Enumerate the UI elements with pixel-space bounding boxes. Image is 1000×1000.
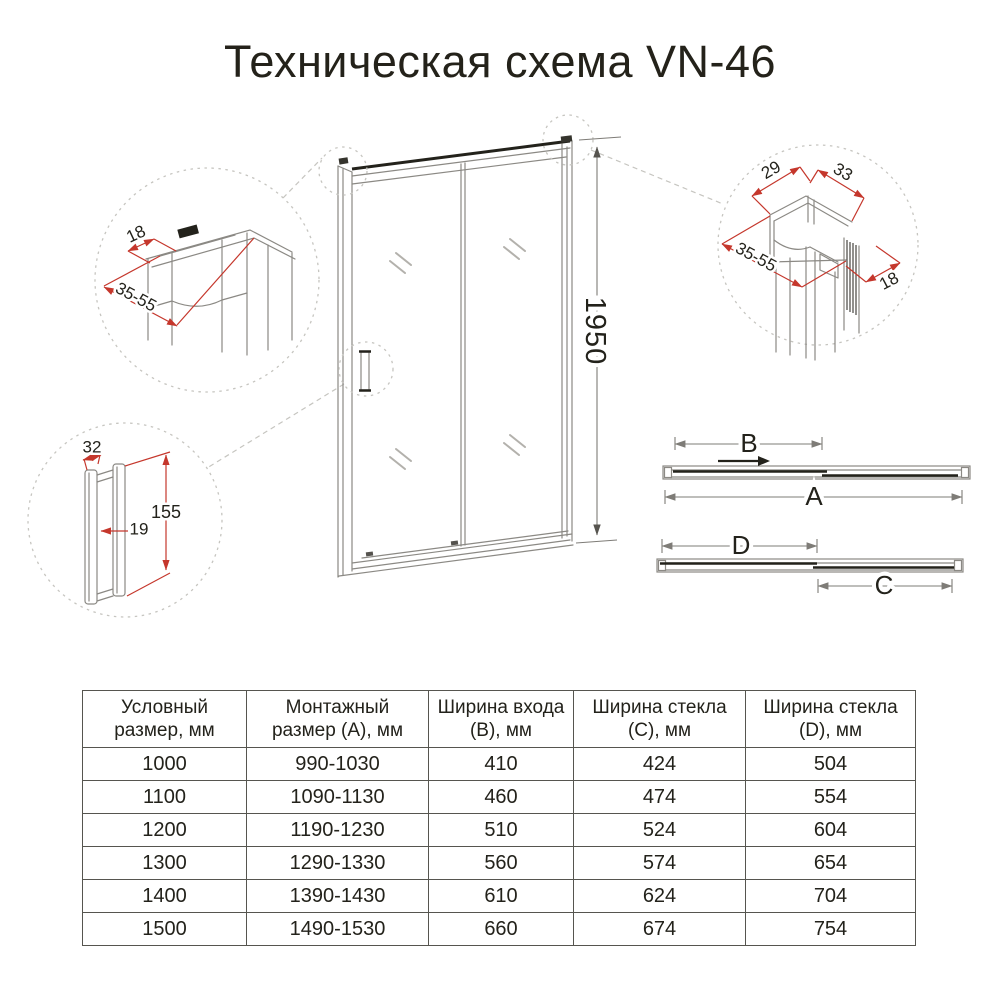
cell: 1290-1330 xyxy=(247,847,429,880)
table-row: 1000 990-1030 410 424 504 xyxy=(83,748,916,781)
cell: 990-1030 xyxy=(247,748,429,781)
table-row: 1300 1290-1330 560 574 654 xyxy=(83,847,916,880)
table-row: 1400 1390-1430 610 624 704 xyxy=(83,880,916,913)
glass-shine-marks xyxy=(390,239,525,469)
door-left-profile xyxy=(338,157,352,577)
c-dim-label: C xyxy=(875,570,894,600)
height-tick-bottom xyxy=(576,540,617,543)
cell: 460 xyxy=(429,781,574,814)
spec-table: Условный размер, мм Монтажный размер (А)… xyxy=(82,690,916,946)
cell: 524 xyxy=(574,814,746,847)
track-cap-left xyxy=(665,468,672,478)
cell: 1390-1430 xyxy=(247,880,429,913)
cell: 754 xyxy=(746,913,916,946)
cell: 674 xyxy=(574,913,746,946)
dim-35-55-label: 35-55 xyxy=(112,278,159,315)
door-bottom-rail xyxy=(338,531,573,577)
cell: 1490-1530 xyxy=(247,913,429,946)
cell: 604 xyxy=(746,814,916,847)
cell: 560 xyxy=(429,847,574,880)
dim-33-label: 33 xyxy=(830,159,856,185)
cell: 1090-1130 xyxy=(247,781,429,814)
corner-profile-drawing xyxy=(770,196,859,360)
cell: 1400 xyxy=(83,880,247,913)
dim-19-label: 19 xyxy=(130,520,149,539)
roller-left xyxy=(366,552,373,557)
cell: 654 xyxy=(746,847,916,880)
cell: 610 xyxy=(429,880,574,913)
cell: 510 xyxy=(429,814,574,847)
detail-top-left-dims: 18 35-55 xyxy=(104,221,254,326)
detail-top-right: 29 33 35-55 18 xyxy=(718,145,918,360)
height-tick-top xyxy=(579,137,621,140)
detail-top-left: 18 35-55 xyxy=(95,168,319,392)
cell: 1300 xyxy=(83,847,247,880)
table-row: 1500 1490-1530 660 674 754 xyxy=(83,913,916,946)
leader-top-right xyxy=(591,150,723,204)
spec-table-header-row: Условный размер, мм Монтажный размер (А)… xyxy=(83,691,916,748)
col-header-glass-d: Ширина стекла (D), мм xyxy=(746,691,916,748)
dim-155-label: 155 xyxy=(151,502,181,522)
table-row: 1200 1190-1230 510 524 604 xyxy=(83,814,916,847)
dim-35-55-right-label: 35-55 xyxy=(732,238,779,275)
track2-cap-left xyxy=(659,561,666,571)
dim-18-right-label: 18 xyxy=(876,268,902,294)
cell: 574 xyxy=(574,847,746,880)
b-dim-label: B xyxy=(740,428,757,458)
right-profile-cap xyxy=(561,135,573,142)
detail-top-right-dims: 29 33 35-55 18 xyxy=(722,157,902,294)
col-header-glass-c: Ширина стекла (С), мм xyxy=(574,691,746,748)
glass-edge-hatch xyxy=(847,240,856,315)
cell: 1200 xyxy=(83,814,247,847)
height-dimension: 1950 xyxy=(576,137,621,543)
cell: 704 xyxy=(746,880,916,913)
plan-view-top: B A xyxy=(663,428,970,511)
table-row: 1100 1090-1130 460 474 554 xyxy=(83,781,916,814)
cell: 410 xyxy=(429,748,574,781)
cell: 1100 xyxy=(83,781,247,814)
leader-top-left xyxy=(283,158,322,198)
col-header-entry-width: Ширина входа (В), мм xyxy=(429,691,574,748)
leader-handle xyxy=(207,384,344,468)
technical-diagram: 1950 B A D C xyxy=(0,0,1000,682)
dim-32-label: 32 xyxy=(83,438,102,457)
callout-circle-handle xyxy=(339,342,393,396)
door-right-profile xyxy=(561,135,573,541)
track2-cap-right xyxy=(955,561,962,571)
detail-handle: 32 155 19 xyxy=(28,423,222,617)
cell: 474 xyxy=(574,781,746,814)
a-dim-label: A xyxy=(805,481,823,511)
left-profile-cap xyxy=(339,157,349,164)
track-cap-right xyxy=(962,468,969,478)
cell: 660 xyxy=(429,913,574,946)
roller-right xyxy=(451,541,458,546)
door-front-view xyxy=(319,115,593,577)
cell: 1000 xyxy=(83,748,247,781)
d-dim-label: D xyxy=(732,530,751,560)
cell: 1500 xyxy=(83,913,247,946)
col-header-nominal-size: Условный размер, мм xyxy=(83,691,247,748)
col-header-mount-size: Монтажный размер (А), мм xyxy=(247,691,429,748)
cell: 424 xyxy=(574,748,746,781)
cell: 504 xyxy=(746,748,916,781)
height-dim-label: 1950 xyxy=(579,297,611,366)
cell: 1190-1230 xyxy=(247,814,429,847)
plan-view-bottom: D C xyxy=(657,530,963,600)
wall-profile-drawing xyxy=(146,225,295,355)
handle-drawing xyxy=(85,464,125,604)
top-bracket xyxy=(177,225,199,239)
door-handle xyxy=(359,352,371,391)
detail-top-left-circle xyxy=(95,168,319,392)
cell: 554 xyxy=(746,781,916,814)
cell: 624 xyxy=(574,880,746,913)
